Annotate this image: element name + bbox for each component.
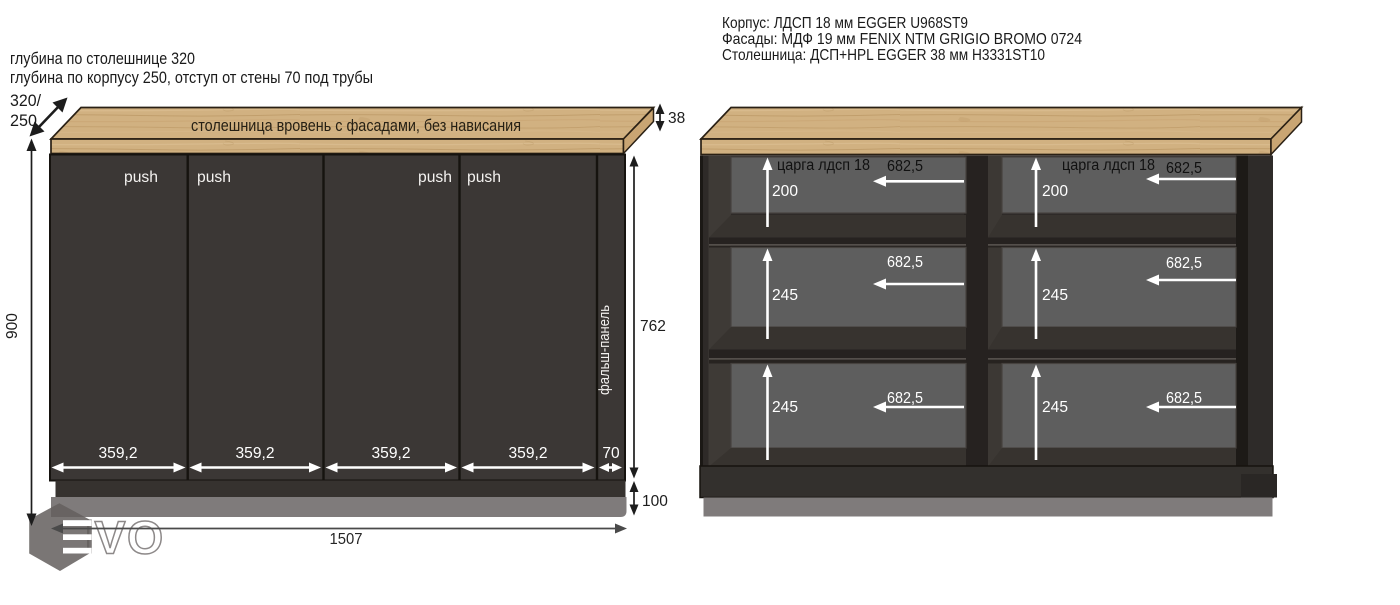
- svg-text:359,2: 359,2: [236, 445, 275, 462]
- svg-text:682,5: 682,5: [1166, 255, 1202, 272]
- svg-text:push: push: [467, 169, 501, 186]
- svg-text:глубина по столешнице 320: глубина по столешнице 320: [10, 49, 195, 68]
- svg-text:359,2: 359,2: [99, 445, 138, 462]
- svg-text:push: push: [124, 169, 158, 186]
- svg-text:200: 200: [772, 183, 798, 200]
- svg-text:38: 38: [668, 110, 685, 127]
- svg-text:900: 900: [4, 313, 21, 339]
- svg-text:70: 70: [602, 445, 620, 462]
- svg-text:1507: 1507: [330, 531, 363, 548]
- svg-text:царга лдсп 18: царга лдсп 18: [1062, 157, 1155, 174]
- svg-text:762: 762: [640, 318, 666, 335]
- svg-text:Корпус: ЛДСП 18 мм EGGER U968S: Корпус: ЛДСП 18 мм EGGER U968ST9: [722, 15, 968, 32]
- svg-text:682,5: 682,5: [887, 158, 923, 175]
- svg-text:359,2: 359,2: [509, 445, 548, 462]
- svg-text:682,5: 682,5: [887, 390, 923, 407]
- svg-text:100: 100: [642, 493, 668, 510]
- svg-text:682,5: 682,5: [1166, 390, 1202, 407]
- svg-text:push: push: [418, 169, 452, 186]
- svg-text:глубина по корпусу 250, отступ: глубина по корпусу 250, отступ от стены …: [10, 68, 373, 87]
- svg-text:245: 245: [1042, 287, 1068, 304]
- svg-text:682,5: 682,5: [1166, 160, 1202, 177]
- svg-text:245: 245: [772, 399, 798, 416]
- svg-text:царга лдсп 18: царга лдсп 18: [777, 157, 870, 174]
- svg-text:245: 245: [772, 287, 798, 304]
- svg-text:Фасады: МДФ 19 мм FENIX NTM GR: Фасады: МДФ 19 мм FENIX NTM GRIGIO BROMO…: [722, 31, 1082, 48]
- svg-text:200: 200: [1042, 183, 1068, 200]
- svg-text:фальш-панель: фальш-панель: [596, 305, 613, 395]
- svg-text:245: 245: [1042, 399, 1068, 416]
- svg-text:VO: VO: [95, 512, 165, 564]
- svg-text:682,5: 682,5: [887, 254, 923, 271]
- svg-text:320/: 320/: [10, 91, 41, 110]
- svg-text:столешница вровень с фасадами,: столешница вровень с фасадами, без навис…: [191, 117, 521, 135]
- svg-text:push: push: [197, 169, 231, 186]
- svg-text:359,2: 359,2: [372, 445, 411, 462]
- svg-text:Столешница: ДСП+HPL EGGER 38 м: Столешница: ДСП+HPL EGGER 38 мм H3331ST1…: [722, 47, 1045, 64]
